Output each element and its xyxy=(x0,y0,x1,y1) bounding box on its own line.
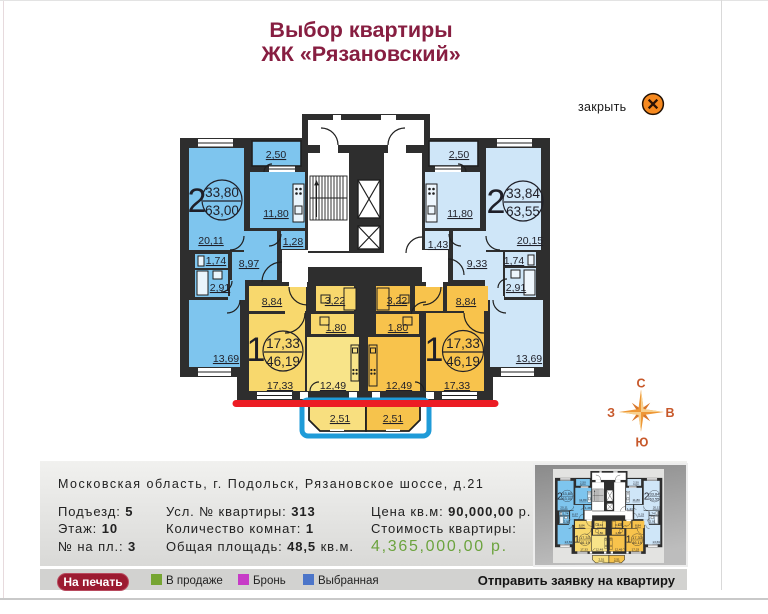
svg-text:1,80: 1,80 xyxy=(388,322,409,334)
svg-text:20,15: 20,15 xyxy=(517,235,543,247)
svg-text:2,51: 2,51 xyxy=(383,413,404,425)
svg-text:1,74: 1,74 xyxy=(504,255,525,267)
svg-text:1: 1 xyxy=(425,331,444,369)
svg-text:8,84: 8,84 xyxy=(262,296,283,308)
svg-text:12,49: 12,49 xyxy=(386,380,412,392)
svg-text:9,33: 9,33 xyxy=(467,258,488,270)
svg-text:3,22: 3,22 xyxy=(325,295,346,307)
svg-text:2,51: 2,51 xyxy=(330,413,351,425)
svg-text:З: З xyxy=(607,406,615,420)
svg-text:12,49: 12,49 xyxy=(320,380,346,392)
svg-text:11,80: 11,80 xyxy=(447,208,473,220)
svg-text:46,19: 46,19 xyxy=(446,354,480,369)
svg-text:2,91: 2,91 xyxy=(506,282,527,294)
svg-text:3,22: 3,22 xyxy=(387,295,408,307)
svg-text:1,80: 1,80 xyxy=(326,322,347,334)
svg-text:63,00: 63,00 xyxy=(205,203,239,218)
svg-text:46,19: 46,19 xyxy=(266,354,300,369)
svg-text:13,69: 13,69 xyxy=(213,353,239,365)
svg-text:17,33: 17,33 xyxy=(266,336,300,351)
svg-text:8,97: 8,97 xyxy=(239,258,260,270)
svg-text:1,28: 1,28 xyxy=(283,236,304,248)
svg-text:2,50: 2,50 xyxy=(449,149,470,161)
svg-text:2,91: 2,91 xyxy=(210,282,231,294)
svg-text:20,11: 20,11 xyxy=(198,235,224,247)
svg-text:33,84: 33,84 xyxy=(506,186,540,201)
svg-text:17,33: 17,33 xyxy=(444,380,470,392)
svg-text:С: С xyxy=(636,377,645,391)
svg-text:17,33: 17,33 xyxy=(446,336,480,351)
svg-text:8,84: 8,84 xyxy=(456,296,477,308)
svg-text:17,33: 17,33 xyxy=(267,380,293,392)
svg-text:1,43: 1,43 xyxy=(428,239,449,251)
svg-text:Ю: Ю xyxy=(636,436,649,450)
svg-text:11,80: 11,80 xyxy=(263,208,289,220)
svg-text:В: В xyxy=(665,406,674,420)
svg-text:33,80: 33,80 xyxy=(205,185,239,200)
svg-text:13,69: 13,69 xyxy=(516,353,542,365)
svg-text:63,55: 63,55 xyxy=(506,204,540,219)
svg-text:2,50: 2,50 xyxy=(266,149,287,161)
svg-text:1,74: 1,74 xyxy=(206,255,227,267)
